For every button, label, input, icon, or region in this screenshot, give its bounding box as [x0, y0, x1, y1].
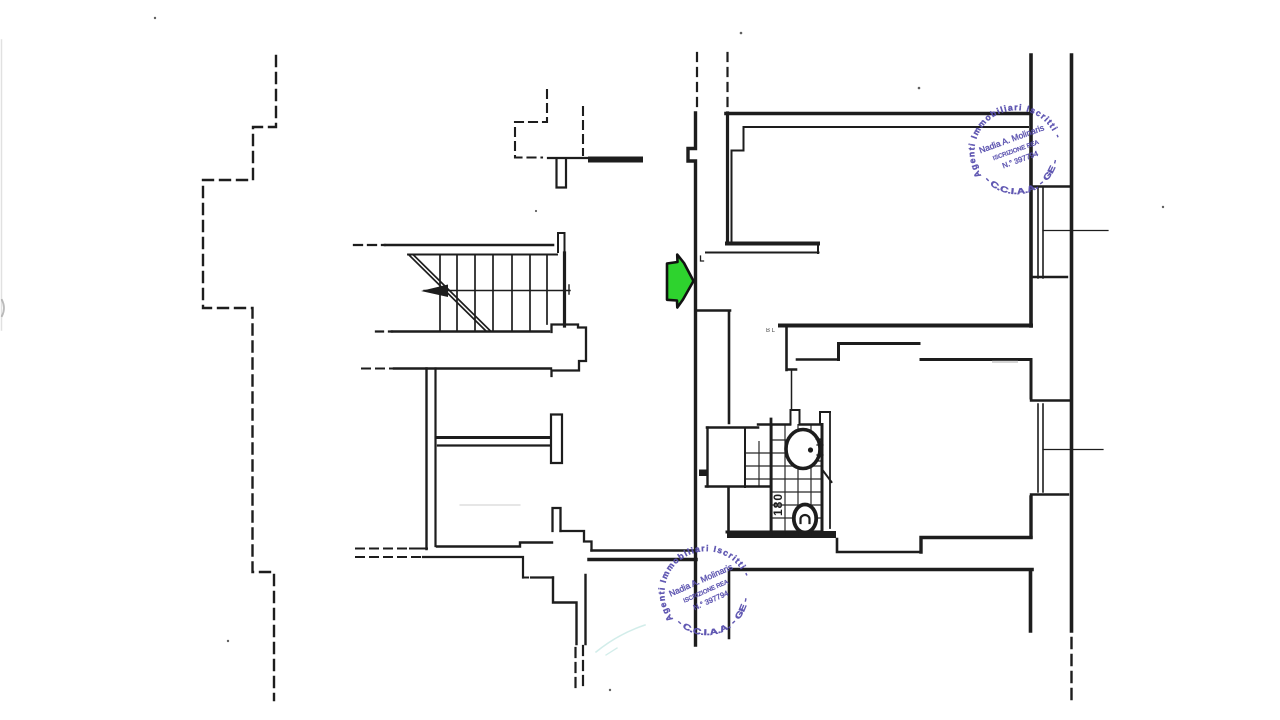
svg-text:180: 180: [771, 493, 785, 516]
svg-text:B L: B L: [766, 328, 776, 334]
